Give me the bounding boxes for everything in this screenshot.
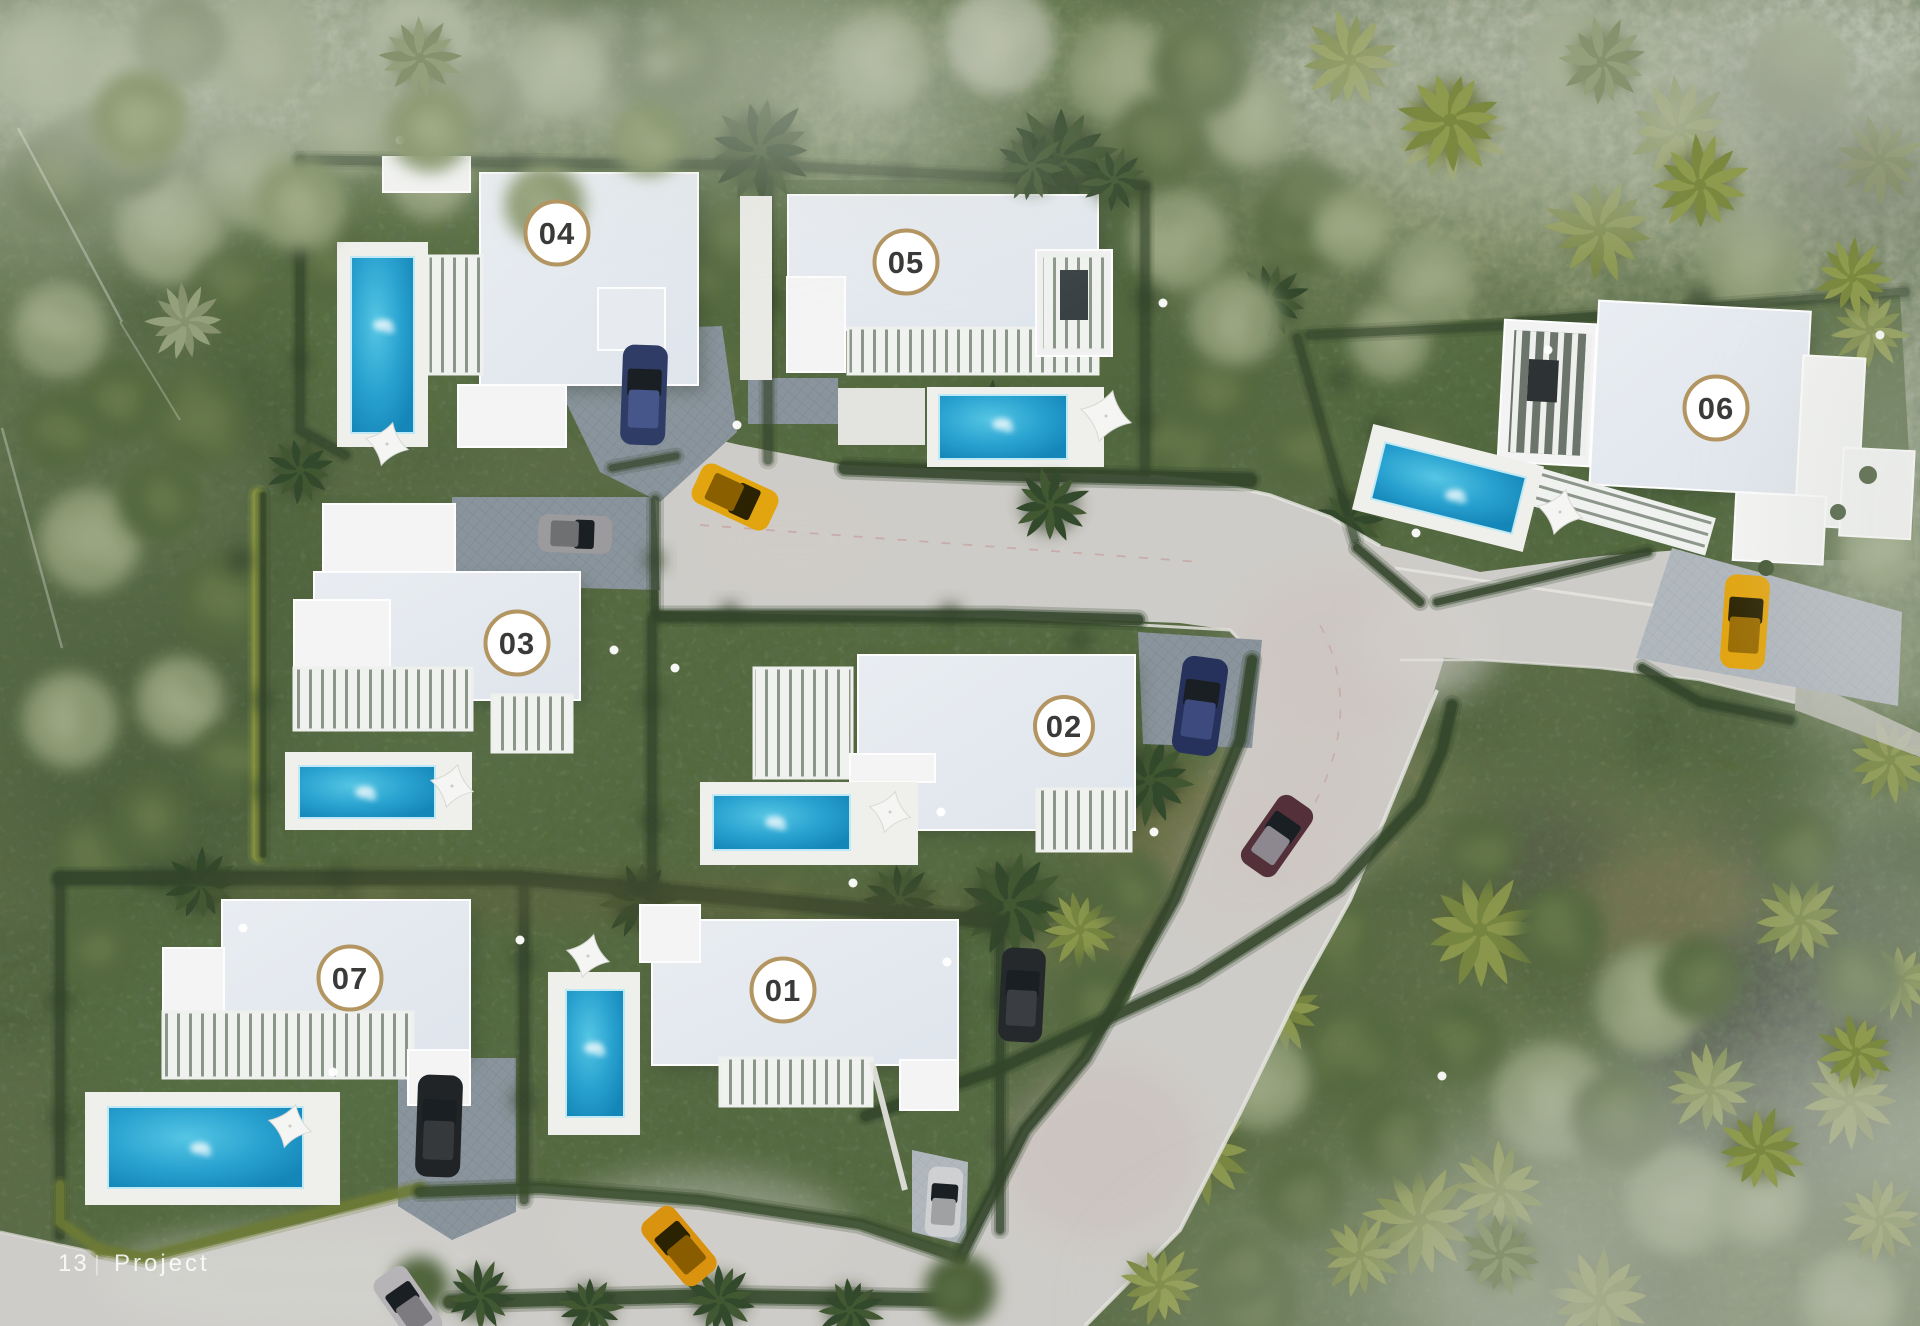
svg-text:05: 05 — [888, 245, 924, 280]
svg-text:|: | — [94, 1251, 100, 1276]
svg-text:03: 03 — [499, 626, 535, 661]
svg-text:01: 01 — [765, 973, 801, 1008]
svg-text:07: 07 — [332, 961, 368, 996]
svg-text:13: 13 — [58, 1250, 89, 1277]
svg-text:02: 02 — [1046, 709, 1082, 744]
svg-text:Project: Project — [114, 1250, 210, 1277]
svg-text:06: 06 — [1698, 391, 1734, 426]
svg-text:04: 04 — [539, 216, 575, 251]
